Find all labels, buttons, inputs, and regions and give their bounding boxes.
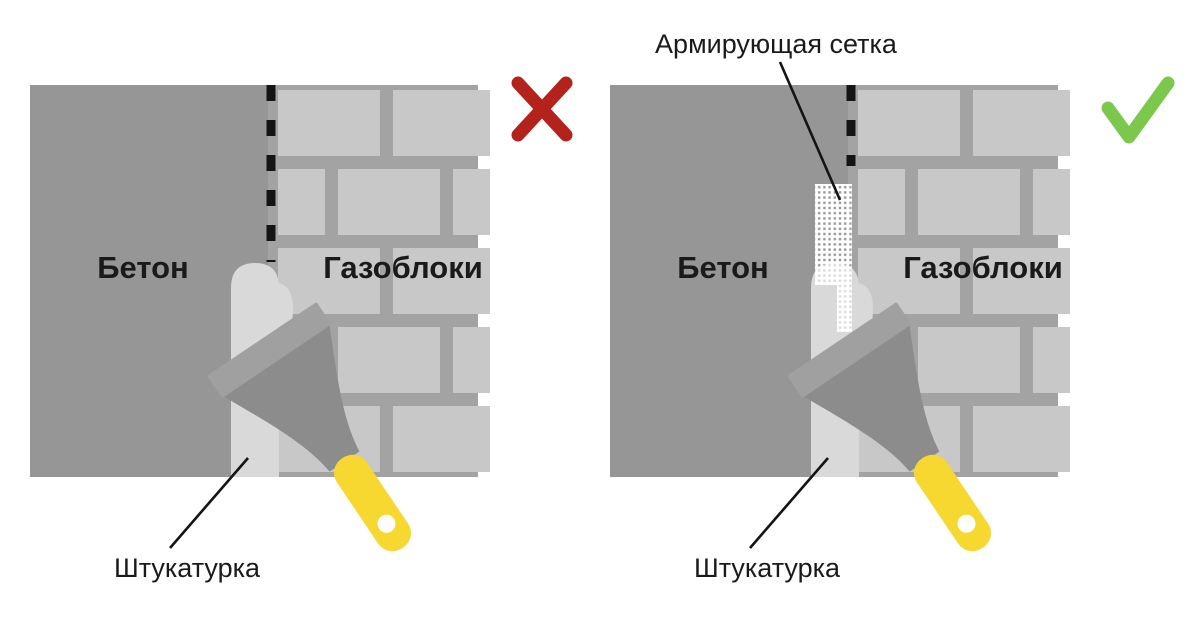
plaster-label: Штукатурка bbox=[114, 554, 260, 582]
brick bbox=[1033, 327, 1070, 393]
wall-illustration bbox=[0, 0, 610, 628]
concrete-label: Бетон bbox=[97, 252, 189, 285]
brick bbox=[918, 169, 1020, 235]
gasblocks-label: Газоблоки bbox=[323, 252, 483, 285]
brick bbox=[973, 406, 1070, 472]
mesh-label: Армирующая сетка bbox=[655, 30, 897, 58]
brick bbox=[453, 169, 490, 235]
plaster-label: Штукатурка bbox=[694, 554, 840, 582]
brick bbox=[278, 90, 380, 156]
panel-wrong: Бетон Газоблоки Штукатурка bbox=[0, 0, 610, 628]
brick bbox=[1033, 169, 1070, 235]
cross-icon bbox=[518, 83, 566, 135]
diagram-canvas: Бетон Газоблоки Штукатурка bbox=[0, 0, 1190, 628]
brick bbox=[393, 406, 490, 472]
brick bbox=[278, 169, 325, 235]
brick bbox=[973, 90, 1070, 156]
brick bbox=[338, 169, 440, 235]
brick bbox=[858, 90, 960, 156]
brick bbox=[858, 169, 905, 235]
brick bbox=[453, 327, 490, 393]
panel-correct: Армирующая сетка Бетон Газоблоки Штукату… bbox=[580, 0, 1190, 628]
concrete-label: Бетон bbox=[677, 252, 769, 285]
brick bbox=[918, 327, 1020, 393]
brick bbox=[338, 327, 440, 393]
brick bbox=[393, 90, 490, 156]
gasblocks-label: Газоблоки bbox=[903, 252, 1063, 285]
checkmark-icon bbox=[1108, 83, 1168, 137]
wall-illustration bbox=[580, 0, 1190, 628]
